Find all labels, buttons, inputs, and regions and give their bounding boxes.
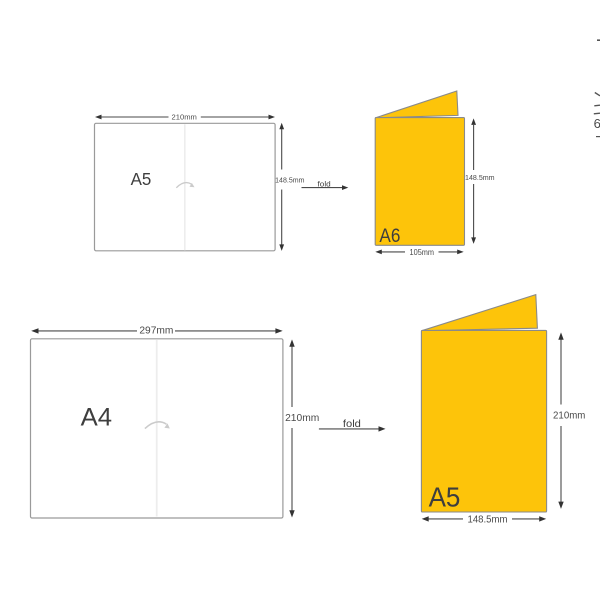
svg-text:fold: fold (318, 180, 331, 189)
svg-text:6: 6 (594, 116, 600, 131)
svg-text:A5: A5 (429, 481, 461, 512)
svg-text:A6: A6 (379, 225, 400, 247)
svg-text:148.5mm: 148.5mm (275, 176, 304, 185)
svg-text:148.5mm: 148.5mm (465, 173, 495, 182)
svg-text:105mm: 105mm (410, 248, 435, 257)
svg-text:A5: A5 (131, 169, 152, 189)
svg-text:210mm: 210mm (285, 413, 319, 424)
svg-text:210mm: 210mm (172, 112, 197, 121)
svg-text:297mm: 297mm (139, 325, 173, 336)
svg-text:fold: fold (343, 419, 361, 430)
svg-text:A4: A4 (81, 403, 112, 431)
svg-text:148.5mm: 148.5mm (468, 514, 508, 525)
svg-text:210mm: 210mm (553, 410, 585, 421)
